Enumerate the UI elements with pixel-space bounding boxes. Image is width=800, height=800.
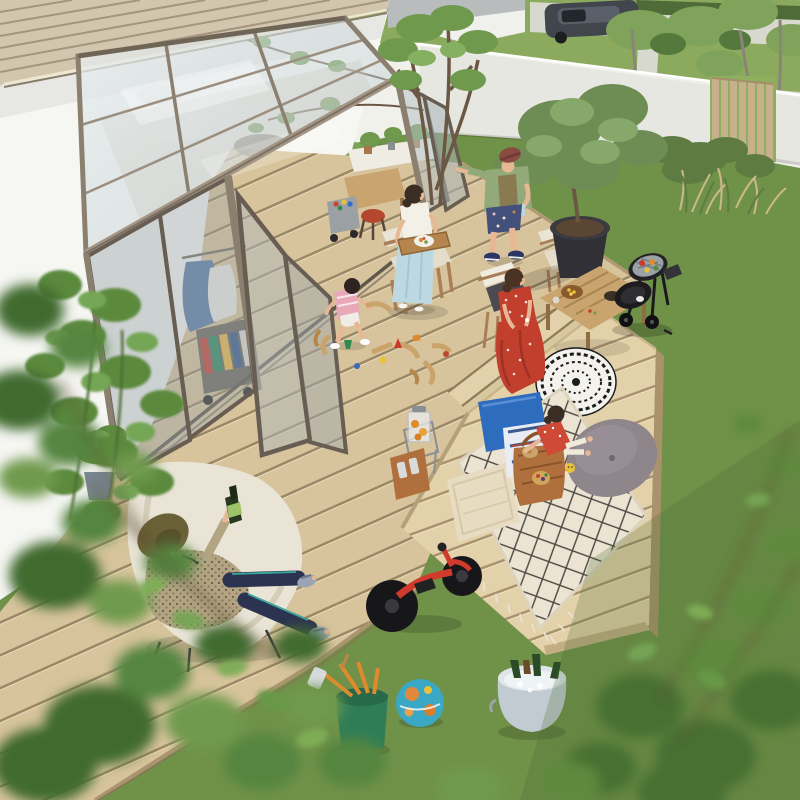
- backyard-photo: [0, 0, 800, 800]
- globe-ball: [396, 679, 444, 728]
- scene-canvas: [0, 0, 800, 800]
